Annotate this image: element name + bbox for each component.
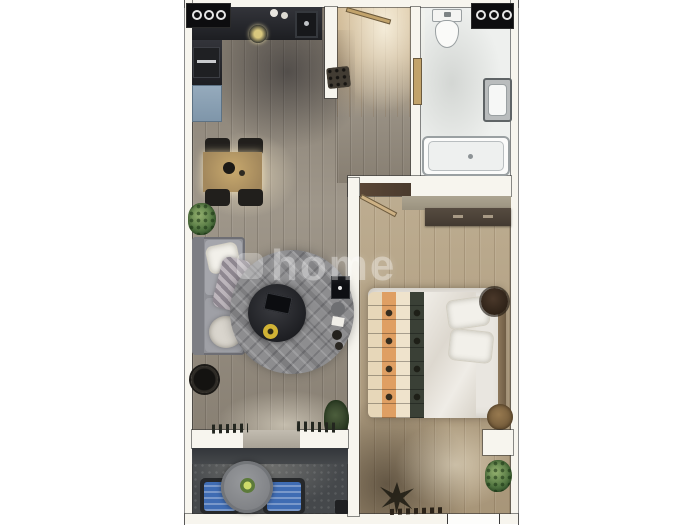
sofa-backrest [192,237,204,355]
floor-pouf [191,366,218,393]
bed-patchwork-blanket [368,292,424,418]
tv-power-icon [338,286,342,290]
wall-living-bedroom [348,178,359,516]
table-bowl [223,162,235,174]
wardrobe-handle-icon [453,215,463,218]
dish [270,9,278,17]
vanity-sink [488,84,507,116]
oven-handle-icon [197,60,216,63]
fridge [192,85,222,122]
dish [281,12,288,19]
floor-plan-image: home [0,0,700,531]
wardrobe [425,208,511,226]
toilet-flush-button-icon [444,12,451,17]
sill-plant-icon [212,423,248,433]
bedroom-doorway [360,183,411,196]
candle [332,330,342,340]
stove-burner-icon [192,10,202,20]
bathtub-drain-icon [468,154,473,159]
dining-chair [205,189,230,206]
bathroom-door-leaf [413,58,422,105]
washer-dial-icon [489,10,499,20]
wall-top [185,0,518,7]
decor-bowl [263,324,278,339]
balcony-window-right [300,430,348,448]
washer-dial-icon [476,10,486,20]
balcony-table-plant [240,478,255,493]
balcony-door-opening [243,430,300,448]
washer-dial-icon [502,10,512,20]
side-stool [331,302,345,316]
balcony-planter [335,500,348,514]
entry-floor [337,7,411,117]
card [331,316,344,327]
stove-burner-icon [204,10,214,20]
woven-pouf [487,404,513,430]
sink-faucet-icon [304,21,309,26]
dining-chair [238,189,263,206]
balcony-threshold [192,448,348,464]
food-plate [249,25,267,43]
bathtub-inner [428,141,504,171]
stove-burner-icon [216,10,226,20]
doormat [326,66,351,89]
candle [335,342,343,350]
nightstand [481,288,508,315]
floor-plan: home [185,0,518,531]
bed-pillow [447,328,494,364]
wall-left [185,0,192,524]
sill-plant-icon [297,421,339,432]
bedroom-window-sill [483,430,513,455]
bedroom-exit-doorway [447,514,500,524]
wardrobe-handle-icon [483,215,493,218]
bottom-margin [185,524,518,531]
table-decor [239,170,245,176]
